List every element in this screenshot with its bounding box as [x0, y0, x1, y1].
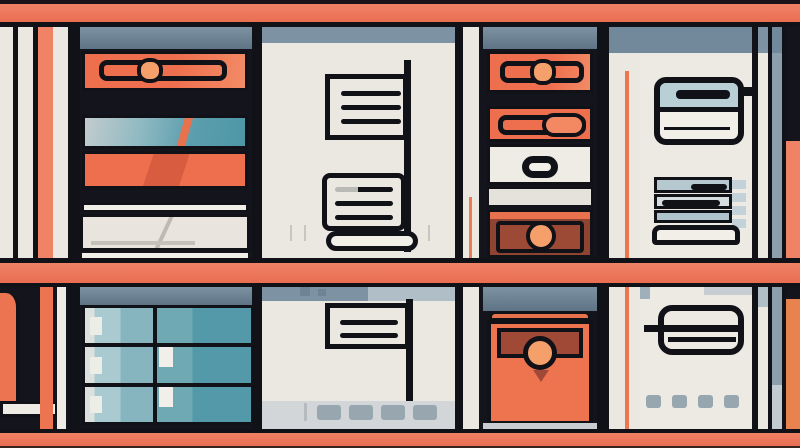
note-line [341, 119, 401, 124]
drawer-tab [90, 357, 102, 375]
cream-strip [82, 203, 248, 212]
printer-slot [676, 90, 730, 99]
paper-edge [732, 180, 746, 189]
coral-box [82, 151, 248, 189]
shelf-divider [455, 287, 463, 429]
compartment-office-gear [640, 27, 752, 258]
shelf-divider [252, 287, 262, 429]
white-drawer [487, 144, 593, 185]
drawer-lip [490, 212, 590, 219]
note-card-icon [325, 303, 410, 349]
paper-slab-line [691, 184, 727, 190]
compartment-back-panel [80, 287, 252, 305]
back-panel-notch [640, 287, 650, 299]
coral-box-shade [138, 151, 192, 189]
drawer-tab [90, 396, 102, 414]
compartment-file-cabinet [80, 287, 252, 429]
note-line [335, 215, 393, 220]
compartment-back-panel [609, 27, 752, 53]
vent-square [672, 395, 687, 408]
gutter-coral-rod [625, 287, 629, 429]
vent-square [317, 405, 341, 420]
shelf-middle-bar [0, 263, 800, 283]
frame-coral-post [40, 287, 53, 429]
gutter-coral-rod [469, 197, 472, 258]
compartment-back-panel [483, 287, 597, 311]
cream-strip [487, 187, 593, 207]
vent-square [349, 405, 373, 420]
printer-tab [742, 87, 752, 96]
note-card-icon [325, 74, 408, 140]
coral-drawer [487, 311, 593, 425]
compartment-coral-drawer [479, 287, 601, 429]
paper-edge [732, 193, 746, 202]
note-line [335, 201, 393, 206]
frame-post-top [772, 27, 782, 53]
shelf-row-top [0, 27, 800, 258]
frame-left [0, 27, 68, 258]
leaning-book [0, 293, 20, 403]
note-line [341, 91, 401, 96]
binder-box [487, 51, 593, 93]
compartment-back-panel [262, 287, 455, 301]
hinge-mark [304, 403, 307, 421]
frame-post [758, 287, 768, 429]
cream-box [80, 214, 250, 251]
frame-post-bottom [772, 385, 782, 429]
shelf-divider [597, 287, 609, 429]
binder-box [82, 51, 248, 91]
hinge-mark [428, 225, 430, 241]
binder-label-frame [99, 60, 227, 81]
cabinet-drawer [157, 387, 251, 422]
binder-box [487, 106, 593, 142]
paper-edge [732, 206, 746, 215]
shelf-divider [68, 287, 80, 429]
frame-post-top [758, 27, 768, 53]
frame-post [772, 27, 782, 258]
drawer-label [159, 387, 173, 407]
binder-clasp [530, 59, 556, 85]
printer-seam [660, 107, 738, 112]
frame-right-coral [786, 141, 800, 258]
frame-post [758, 27, 768, 258]
binder-clasp [542, 113, 586, 137]
printer-tray-line [664, 127, 730, 130]
note-tray [326, 231, 418, 251]
frame-coral-post [38, 27, 53, 258]
frame-post [13, 27, 18, 258]
compartment-storage-box [640, 287, 752, 429]
drawer-knob [523, 336, 557, 370]
frame-right-edge [786, 27, 800, 258]
compartment-stacked-boxes [80, 27, 252, 258]
compartment-notes [262, 27, 455, 258]
frame-post-top [758, 287, 768, 307]
drawer-knob [526, 221, 556, 251]
back-panel-notch [318, 289, 326, 296]
vent-square [724, 395, 739, 408]
gutter-coral-rod [625, 71, 629, 258]
hinge-mark [304, 225, 306, 241]
frame-post [57, 287, 66, 429]
paper-tray [652, 225, 740, 245]
note-hanger-rod [406, 299, 413, 413]
vent-square [413, 405, 437, 420]
back-panel-strip [704, 287, 752, 295]
shelf-divider [252, 27, 262, 258]
vent-square [381, 405, 405, 420]
cream-box-line [91, 241, 195, 245]
cream-box-crease [149, 214, 178, 251]
vent-square [698, 395, 713, 408]
storage-box-cross-line [644, 325, 742, 332]
note-line [341, 105, 401, 110]
back-panel-notch [300, 287, 310, 296]
cabinet-drawer [157, 347, 251, 382]
cabinet-drawer [85, 347, 153, 382]
drawer-label [159, 347, 173, 367]
storage-box-inner-line [668, 337, 736, 342]
drawer-handle [522, 156, 558, 178]
note-line [340, 320, 398, 325]
paper-slab [654, 194, 732, 209]
frame-right-coral [786, 287, 800, 429]
teal-box [82, 115, 248, 149]
drawer-shadow-pointer [533, 370, 549, 382]
cabinet-drawer [157, 308, 251, 343]
teal-box-stripe [173, 115, 194, 149]
compartment-note-panel [262, 287, 455, 429]
paper-slab [654, 210, 732, 223]
drawer-tab [90, 317, 102, 335]
note-line [340, 333, 398, 338]
shelf-bottom-bar [0, 433, 800, 446]
compartment-drawer-stack [479, 27, 601, 258]
compartment-back-panel [483, 27, 597, 49]
paper-slab [654, 177, 732, 193]
shelf-row-bottom [0, 287, 800, 429]
cabinet-drawer [85, 308, 153, 343]
cabinet-drawer [85, 387, 153, 422]
shelf-top-bar [0, 4, 800, 22]
drawer-front [487, 320, 593, 425]
binder-clasp [137, 58, 163, 83]
note-pad-icon [322, 173, 406, 231]
note-line [335, 187, 393, 192]
shelf-gutter [463, 287, 479, 429]
paper-stack-icon [652, 177, 748, 255]
frame-left [0, 287, 68, 429]
shelf-divider [68, 27, 80, 258]
file-cabinet [82, 305, 250, 425]
vent-square [646, 395, 661, 408]
compartment-back-panel [262, 27, 455, 43]
shelf-illustration [0, 0, 800, 448]
printer-icon [654, 77, 744, 145]
maroon-drawer [487, 209, 593, 258]
paper-slab-line [662, 200, 720, 206]
compartment-back-panel [80, 27, 252, 49]
frame-right-top [786, 287, 800, 299]
shelf-divider [597, 27, 609, 258]
hinge-mark [290, 225, 292, 241]
shelf-divider [455, 27, 463, 258]
